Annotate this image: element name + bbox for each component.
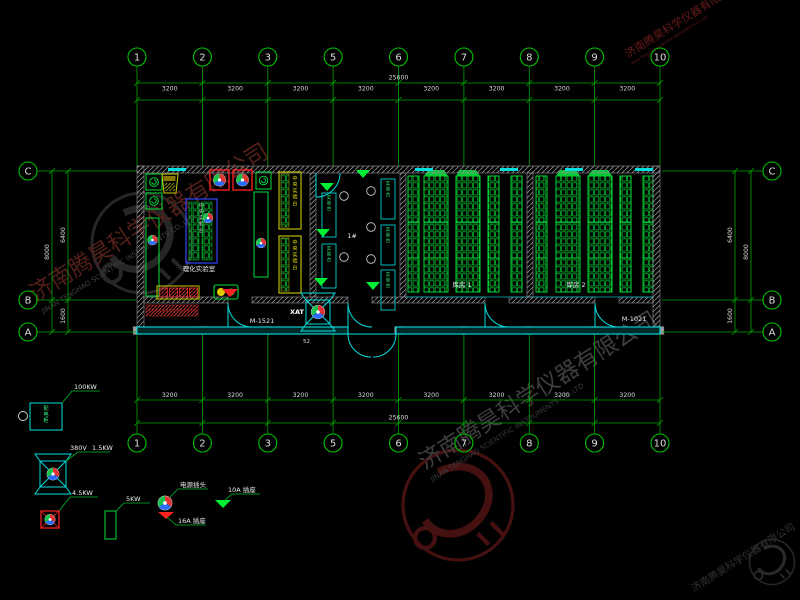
axis-number: 5	[330, 53, 336, 64]
segment-dimension: 3200	[489, 86, 505, 93]
row-dim-lower-right: 1600	[727, 308, 734, 324]
stool-icon	[367, 187, 376, 196]
fan-roundel-icon	[148, 235, 158, 245]
fan-voltage-label: 380V	[70, 444, 87, 452]
row-dim-total-left: 8000	[44, 244, 51, 260]
right-wall	[653, 166, 660, 334]
side-bench	[254, 192, 268, 277]
shelving-bench	[556, 176, 580, 292]
instrument-bench-label: 实验台	[386, 180, 391, 198]
row-dim-upper-left: 6400	[60, 227, 67, 243]
window-mark	[565, 168, 583, 171]
motor-icon	[19, 412, 28, 421]
left-room-label: 理化实验室	[183, 264, 216, 273]
hotplate-cell	[190, 288, 198, 297]
instrument-bench-label: 实验台	[327, 194, 332, 212]
floorplan-drawing: 济南腾昊科学仪器有限公司 JINAN TENGHAO SCIENTIFIC IN…	[0, 0, 800, 600]
axis-number: 8	[526, 53, 532, 64]
axis-number: 1	[134, 53, 140, 64]
segment-dimension: 3200	[358, 86, 374, 93]
air-diffuser-icon	[320, 183, 334, 191]
socket16-label: 16A 插座	[178, 516, 206, 525]
axis-number: 9	[591, 439, 597, 450]
shelving-bench	[488, 176, 499, 292]
stool-icon	[367, 255, 376, 264]
bench-cell	[202, 202, 212, 260]
segment-dimension: 3200	[423, 86, 439, 93]
row-dim-upper-right: 6400	[727, 227, 734, 243]
exhaust-outlet-icon	[256, 172, 271, 189]
axis-number: 5	[330, 439, 336, 450]
fume-hood-cap	[164, 176, 176, 181]
bench-power-label: 5KW	[126, 495, 141, 503]
corridor-wall	[372, 297, 485, 303]
fan-legend-icon	[35, 454, 71, 494]
watermark-cn: 济南腾昊科学仪器有限公司	[25, 139, 273, 307]
watermark-top-right: 济南腾昊科学仪器有限公司 JINAN TENGHAO SCIENTIFIC IN…	[621, 0, 744, 66]
stool-icon	[340, 253, 349, 262]
shelving-bench	[643, 176, 653, 292]
socket10-icon	[215, 500, 231, 508]
left-wall	[137, 166, 144, 334]
axis-number: 3	[265, 439, 271, 450]
bench-cell	[281, 238, 289, 291]
segment-dimension: 3200	[423, 392, 439, 399]
cabinet-power-label: 100KW	[74, 383, 97, 391]
segment-dimension: 3200	[358, 392, 374, 399]
room2-label: 库房 2	[566, 280, 585, 289]
room1-label: 库房 1	[452, 280, 471, 289]
socket10-label: 10A 插座	[228, 485, 256, 494]
shelving-bench	[620, 176, 631, 292]
segment-dimension: 3200	[489, 392, 505, 399]
shelving-bench	[424, 176, 448, 292]
segment-dimension: 3200	[619, 392, 635, 399]
row-letter: C	[769, 167, 776, 178]
segment-dimension: 3200	[293, 86, 309, 93]
shelving-bench	[456, 176, 480, 292]
axis-number: 10	[654, 439, 667, 450]
axis-number: 2	[199, 53, 205, 64]
bench-cell	[189, 202, 199, 260]
fan-roundel-icon	[203, 213, 213, 223]
row-letter: C	[25, 167, 32, 178]
bench-cell	[281, 174, 289, 227]
corridor-wall	[509, 297, 595, 303]
fan-roundel-icon	[256, 238, 266, 248]
row-letter: B	[25, 296, 32, 307]
segment-dimension: 3200	[619, 86, 635, 93]
shelving-bench	[536, 176, 547, 292]
small-fan-power-label: 4.5KW	[72, 489, 93, 497]
socket16-icon	[158, 512, 174, 519]
side-bench-label: 中央实验台	[292, 238, 298, 271]
watermark-bottom: 济南腾昊科学仪器有限公司 JINAN TENGHAO SCIENTIFIC IN…	[403, 307, 668, 560]
fume-hood-hatch	[165, 183, 176, 191]
hotplate-cell	[170, 288, 178, 297]
axis-number: 1	[134, 439, 140, 450]
axis-number: 2	[199, 439, 205, 450]
fan-power-label: 1.5KW	[92, 444, 113, 452]
bench-legend-icon	[105, 511, 116, 539]
partition-wall	[400, 173, 406, 297]
row-letter: A	[769, 328, 776, 339]
spiral-icon	[150, 178, 159, 187]
fan-tag: XAT	[290, 308, 305, 316]
air-diffuser-icon	[356, 170, 370, 178]
corridor-wall	[619, 297, 653, 303]
fan-roundel-icon	[213, 174, 225, 186]
spiral-icon	[259, 176, 268, 185]
left-door-tag: M-1521	[250, 317, 275, 325]
right-door-tag: M-1021	[622, 315, 647, 323]
total-dimension-top: 25600	[389, 75, 409, 82]
shelving-bench	[408, 176, 419, 292]
air-diffuser-icon	[366, 282, 380, 290]
middle-room: 1#	[314, 170, 395, 310]
row-letter: B	[769, 296, 776, 307]
distribution-strip	[146, 305, 198, 310]
watermark-bottom-right: 济南腾昊科学仪器有限公司	[689, 520, 798, 595]
segment-dimension: 3200	[293, 392, 309, 399]
cabinet-label: 配电柜	[43, 406, 48, 424]
fan-roundel-icon	[45, 514, 55, 524]
fan-roundel-icon	[236, 174, 248, 186]
fan-roundel-icon	[311, 305, 324, 318]
power-plug-icon	[158, 496, 172, 510]
side-bench-label: 中央实验台	[292, 174, 298, 207]
cad-canvas: 济南腾昊科学仪器有限公司 JINAN TENGHAO SCIENTIFIC IN…	[0, 0, 800, 600]
air-diffuser-icon	[316, 229, 330, 237]
distribution-strip	[146, 311, 198, 316]
hotplate-cell	[160, 288, 168, 297]
axis-number: 9	[591, 53, 597, 64]
window-mark	[168, 168, 186, 171]
row-dim-lower-left: 1600	[60, 308, 67, 324]
small-fan-icon	[41, 511, 59, 528]
segment-dimension: 3200	[227, 392, 243, 399]
axis-number: 6	[395, 439, 401, 450]
fan-roundel-icon	[47, 468, 59, 480]
axis-number: 6	[395, 53, 401, 64]
axis-number: 3	[265, 53, 271, 64]
plug-label: 电源插头	[180, 480, 207, 489]
axis-number: 7	[461, 439, 467, 450]
window-mark	[635, 168, 653, 171]
watermark-cn: 济南腾昊科学仪器有限公司	[689, 520, 798, 595]
stool-icon	[340, 192, 349, 201]
row-letter: A	[25, 328, 32, 339]
instrument-bench-label: 实验台	[386, 226, 391, 244]
segment-dimension: 3200	[554, 392, 570, 399]
row-dim-total-right: 8000	[743, 244, 750, 260]
window-mark	[415, 168, 433, 171]
total-dimension-bottom: 25600	[389, 415, 409, 422]
entry-number: 52	[303, 339, 310, 345]
hotplate-cell	[180, 288, 188, 297]
legend: 100KW 380V 1.5KW 4.5KW 5KW 电源插头	[19, 383, 261, 539]
shelving-bench	[588, 176, 612, 292]
segment-dimension: 3200	[554, 86, 570, 93]
partition-wall	[527, 173, 533, 297]
instrument-bench-label: 实验台	[327, 245, 332, 263]
segment-dimension: 3200	[162, 392, 178, 399]
instrument-bench-label: 实验台	[386, 271, 391, 289]
window-mark	[500, 168, 518, 171]
segment-dimension: 3200	[227, 86, 243, 93]
stool-icon	[367, 223, 376, 232]
exhaust-outlet-icon	[146, 174, 162, 190]
mid-room-label: 1#	[347, 232, 357, 240]
shelving-bench	[511, 176, 522, 292]
axis-number: 10	[654, 53, 667, 64]
axis-number: 8	[526, 439, 532, 450]
segment-dimension: 3200	[162, 86, 178, 93]
bottom-wall	[396, 327, 660, 334]
corridor-wall	[252, 297, 348, 303]
axis-number: 7	[461, 53, 467, 64]
